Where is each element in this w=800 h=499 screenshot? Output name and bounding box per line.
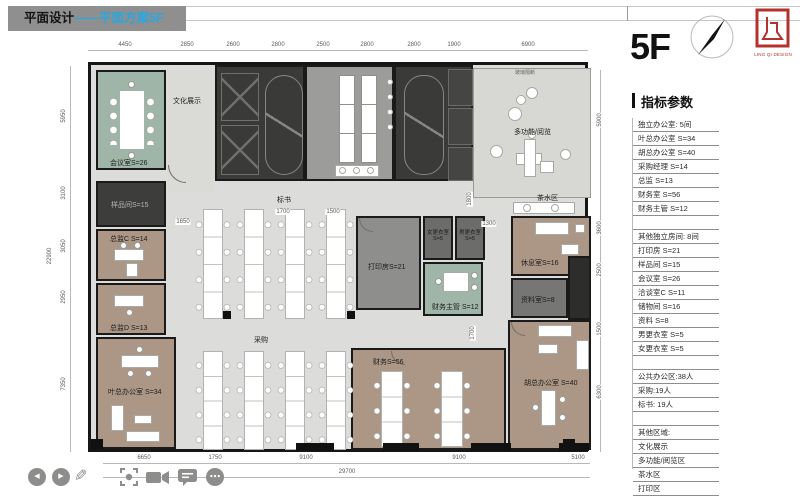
presentation-slide: { "title": { "prefix": "平面设计", "highligh… xyxy=(0,0,800,499)
wall-stub xyxy=(296,443,334,451)
dim-label: 2800 xyxy=(406,42,421,48)
core-elevators xyxy=(215,65,305,181)
sink xyxy=(551,204,559,212)
desk-bank xyxy=(441,371,463,447)
param-row: 采购:19人 xyxy=(633,384,719,398)
dim-label: 2500 xyxy=(315,42,330,48)
param-row: 打印房 S=21 xyxy=(633,244,719,258)
param-row: 独立办公室: 5间 xyxy=(633,118,719,132)
param-row: 茶水区 xyxy=(633,468,719,482)
stool xyxy=(508,107,522,121)
dim-line-bottom xyxy=(103,463,590,464)
param-row: 女更衣室 S=5 xyxy=(633,342,719,356)
param-row: 多功能/阅览区 xyxy=(633,454,719,468)
room-ye-office: 叶总办公室 S=34 xyxy=(96,337,176,449)
previous-icon: ◀ xyxy=(34,473,39,480)
sofa xyxy=(524,139,536,177)
dim-label: 5100 xyxy=(570,455,585,461)
header-tick xyxy=(627,6,628,21)
urinal xyxy=(387,124,393,130)
dim-label: 9100 xyxy=(298,455,313,461)
room-hu-office: 胡总办公室 S=40 xyxy=(508,320,591,450)
dim-label-total: 22900 xyxy=(47,247,53,266)
elevator-shaft xyxy=(221,125,259,175)
pencil-icon: ✎ xyxy=(74,468,87,485)
dim-label: 2850 xyxy=(179,42,194,48)
title-highlight: ——平面方案5F xyxy=(74,11,164,25)
laser-pointer-button[interactable] xyxy=(120,468,138,486)
desk-bank xyxy=(244,351,264,450)
desk xyxy=(114,249,144,261)
chair xyxy=(435,278,442,285)
more-options-button[interactable]: ⋯ xyxy=(206,468,224,486)
table xyxy=(561,244,579,255)
dim-label: 1700 xyxy=(275,209,290,215)
room-storage xyxy=(568,256,591,320)
stool xyxy=(526,87,538,99)
room-finance-supervisor: 财务主管 S=12 xyxy=(423,262,483,316)
sofa xyxy=(111,405,124,431)
room-label: 女更衣室 S=5 xyxy=(426,230,450,242)
desk xyxy=(443,272,469,292)
sink xyxy=(353,167,360,174)
pen-tool-button[interactable]: ✎ xyxy=(74,466,87,486)
core-stair-2 xyxy=(394,65,473,181)
param-row: 公共办公区:38人 xyxy=(633,370,719,384)
room-meeting: 会议室S=26 xyxy=(96,70,166,170)
previous-slide-button[interactable]: ◀ xyxy=(28,468,46,486)
dim-label: 7350 xyxy=(61,376,67,391)
room-label: 男更衣室 S=5 xyxy=(458,230,482,242)
stool xyxy=(516,95,526,105)
floor-plan: 会议室S=26 样品间S=15 总监C S=14 总监D S=13 叶总办公室 … xyxy=(88,62,588,452)
toilet-area xyxy=(305,65,394,181)
param-row: 会议室 S=26 xyxy=(633,272,719,286)
param-row-blank xyxy=(633,412,719,426)
wall-stub xyxy=(383,443,419,451)
room-label: 样品间S=15 xyxy=(111,200,149,210)
desk-bank xyxy=(381,371,403,447)
elevator-shaft xyxy=(221,73,259,121)
urinal xyxy=(387,109,393,115)
floor-label: 5F xyxy=(630,26,670,68)
dim-label: 1800 xyxy=(467,191,473,206)
urinal xyxy=(387,79,393,85)
panel-heading: 指标参数 xyxy=(641,92,693,111)
room-label: 资料室S=8 xyxy=(521,295,555,305)
room-women-changing: 女更衣室 S=5 xyxy=(423,216,453,260)
desk xyxy=(126,263,138,277)
chair xyxy=(145,370,152,377)
table xyxy=(575,224,585,233)
dim-label: 1750 xyxy=(207,455,222,461)
param-row: 洽谈室C S=11 xyxy=(633,286,719,300)
param-row: 文化展示 xyxy=(633,440,719,454)
parameter-list: 独立办公室: 5间 叶总办公室 S=34 胡总办公室 S=40 采购经理 S=1… xyxy=(633,118,719,496)
desk xyxy=(121,355,159,368)
sink xyxy=(523,204,531,212)
dim-label: 3600 xyxy=(597,220,603,235)
dim-label: 1500 xyxy=(325,209,340,215)
sink xyxy=(339,167,346,174)
desk-bank xyxy=(326,209,346,319)
room-director-d: 总监D S=13 xyxy=(96,283,166,335)
dim-label: 2800 xyxy=(270,42,285,48)
param-row-blank xyxy=(633,356,719,370)
video-camera-button[interactable] xyxy=(146,470,170,485)
param-row: 其他区域: xyxy=(633,426,719,440)
dim-line-total xyxy=(103,477,590,478)
partition-note: 玻璃隔断 xyxy=(515,69,535,76)
param-row: 财务主管 S=12 xyxy=(633,202,719,216)
chair xyxy=(559,414,566,421)
zone-label: 文化展示 xyxy=(173,96,201,106)
chair xyxy=(471,284,478,291)
dim-label-total: 29700 xyxy=(338,469,357,475)
param-row: 样品间 S=15 xyxy=(633,258,719,272)
wall-stub xyxy=(471,443,511,451)
param-row: 男更衣室 S=5 xyxy=(633,328,719,342)
header-rule-top xyxy=(186,6,800,7)
dim-label: 2600 xyxy=(225,42,240,48)
zone-label-purchase: 采购 xyxy=(254,335,268,345)
desk-bank xyxy=(326,351,346,450)
param-row: 财务室 S=56 xyxy=(633,188,719,202)
stool xyxy=(560,149,571,160)
dim-label: 9100 xyxy=(451,455,466,461)
chair xyxy=(136,346,143,353)
param-row: 储物间 S=16 xyxy=(633,300,719,314)
desk-bank xyxy=(203,209,223,319)
urinal xyxy=(387,94,393,100)
room-label: 财务主管 S=12 xyxy=(432,302,479,312)
dim-label: 3050 xyxy=(61,238,67,253)
title-prefix: 平面设计 xyxy=(24,11,74,25)
column xyxy=(347,311,355,319)
param-row: 标书: 19人 xyxy=(633,398,719,412)
sofa xyxy=(576,340,589,370)
zone-label-tea: 茶水区 xyxy=(537,193,558,203)
stairwell xyxy=(265,75,303,175)
room-sample: 样品间S=15 xyxy=(96,181,166,227)
chair xyxy=(126,309,133,316)
room-label: 总监C S=14 xyxy=(110,234,148,244)
param-row: 总监 S=13 xyxy=(633,174,719,188)
comment-button[interactable] xyxy=(178,469,197,486)
room-finance: 财务S=56 xyxy=(351,348,506,450)
sofa xyxy=(126,431,160,442)
dim-label: 1700 xyxy=(470,325,476,340)
param-row: 资料 S=8 xyxy=(633,314,719,328)
sofa xyxy=(540,161,554,173)
room-label: 休息室S=16 xyxy=(521,258,559,268)
toilet-stalls xyxy=(339,75,355,163)
chair xyxy=(471,272,478,279)
room-archive: 资料室S=8 xyxy=(511,278,568,318)
stairwell xyxy=(404,75,444,175)
service-room xyxy=(448,108,473,145)
dim-line-top xyxy=(88,50,588,51)
room-director-c: 总监C S=14 xyxy=(96,229,166,281)
column xyxy=(223,311,231,319)
toilet-stalls xyxy=(361,75,377,163)
play-icon: ▶ xyxy=(58,473,63,480)
zone-multifunction: 多功能/阅览 xyxy=(473,68,591,198)
room-label: 财务S=56 xyxy=(373,357,404,367)
dim-label: 3100 xyxy=(61,185,67,200)
desk-bank xyxy=(203,351,223,450)
param-row: 采购经理 S=14 xyxy=(633,160,719,174)
room-label: 胡总办公室 S=40 xyxy=(524,378,578,388)
ellipsis-icon: ⋯ xyxy=(210,471,221,483)
sofa xyxy=(538,325,572,337)
sink xyxy=(367,167,374,174)
param-row: 打印区 xyxy=(633,482,719,496)
chair xyxy=(559,396,566,403)
desk xyxy=(114,295,144,307)
dim-label: 1300 xyxy=(481,221,496,227)
dim-label: 6300 xyxy=(597,384,603,399)
coffee-table xyxy=(538,344,558,354)
param-row: 胡总办公室 S=40 xyxy=(633,146,719,160)
zone-label: 多功能/阅览 xyxy=(514,127,551,137)
logo-text: LING QI DESIGN xyxy=(752,52,794,57)
param-row: 叶总办公室 S=34 xyxy=(633,132,719,146)
conference-table xyxy=(120,91,144,149)
dim-label: 2950 xyxy=(61,289,67,304)
dim-label: 5950 xyxy=(61,108,67,123)
chair xyxy=(127,370,134,377)
dim-label: 1500 xyxy=(597,321,603,336)
param-row: 其他独立房间: 8间 xyxy=(633,230,719,244)
zone-label-bid: 标书 xyxy=(277,195,291,205)
param-row-blank xyxy=(633,216,719,230)
coffee-table xyxy=(134,415,152,424)
room-label: 会议室S=26 xyxy=(110,158,148,168)
desk-bank xyxy=(285,209,305,319)
play-button[interactable]: ▶ xyxy=(52,468,70,486)
heading-accent-bar xyxy=(632,93,635,108)
column xyxy=(91,439,103,449)
dim-label: 5900 xyxy=(597,112,603,127)
stool xyxy=(490,145,503,158)
room-label: 打印房S=21 xyxy=(368,262,406,272)
sofa xyxy=(535,222,569,235)
dim-label: 1650 xyxy=(175,219,190,225)
compass-icon xyxy=(688,13,736,61)
desk-bank xyxy=(285,351,305,450)
dim-label: 6650 xyxy=(136,455,151,461)
room-label: 总监D S=13 xyxy=(110,323,148,333)
service-room xyxy=(448,147,473,181)
dim-label: 4450 xyxy=(117,42,132,48)
dim-line-left xyxy=(70,66,71,452)
panel-left-rule xyxy=(632,118,633,469)
column xyxy=(563,439,575,449)
room-label: 叶总办公室 S=34 xyxy=(108,387,162,397)
desk xyxy=(541,390,556,426)
dim-label: 2800 xyxy=(359,42,374,48)
service-room xyxy=(448,69,473,106)
desk-bank xyxy=(244,209,264,319)
dim-label: 1900 xyxy=(446,42,461,48)
dim-label: 6900 xyxy=(520,42,535,48)
logo-icon xyxy=(753,8,793,52)
slide-title-bar: 平面设计——平面方案5F xyxy=(8,6,186,31)
chair xyxy=(532,404,539,411)
dim-label: 2500 xyxy=(597,262,603,277)
chair xyxy=(128,81,135,88)
